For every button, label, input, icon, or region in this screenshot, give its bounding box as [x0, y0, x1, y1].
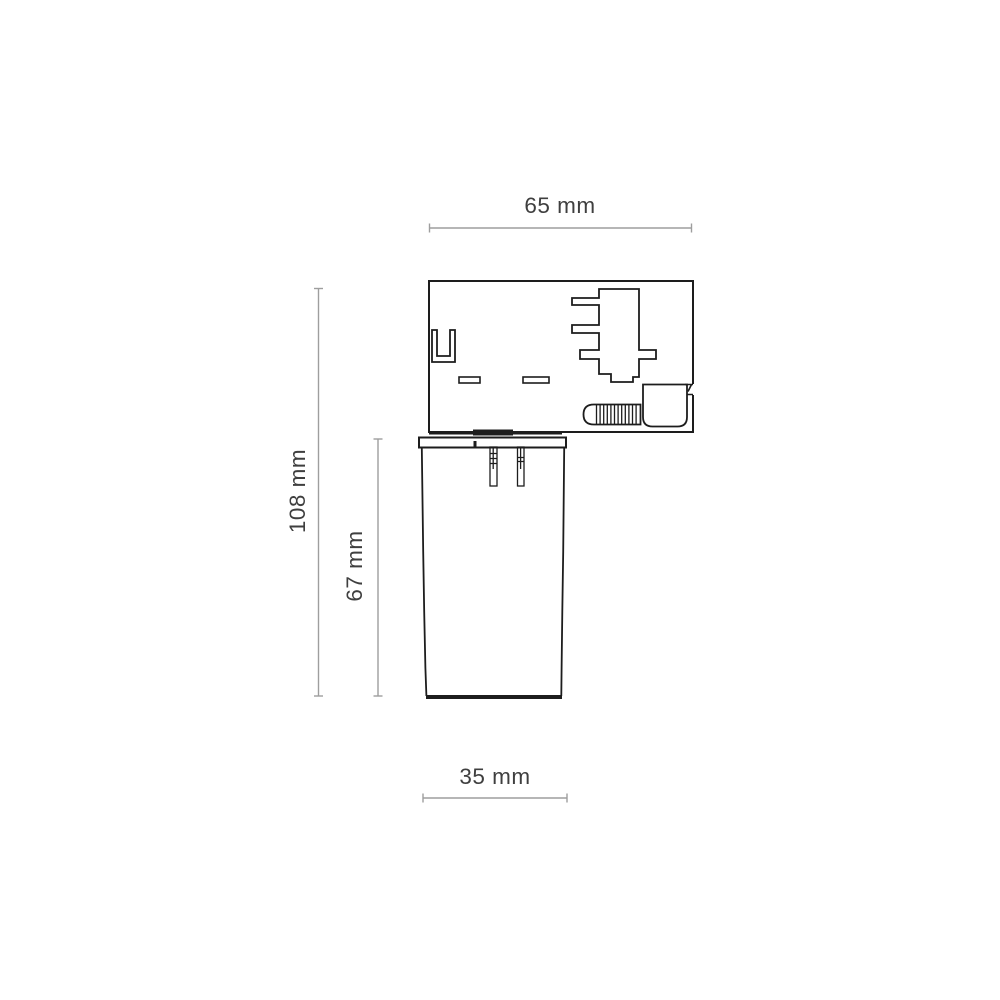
dimension-overall-height — [314, 289, 323, 697]
fixture-solid-fills — [426, 430, 562, 700]
label-overall-height: 108 mm — [285, 449, 310, 533]
cylinder-body-right-edge — [561, 448, 564, 697]
contact-pin-left — [490, 447, 497, 486]
dimension-drawing-canvas: 65 mm 108 mm 67 mm 35 mm — [0, 0, 1000, 1000]
dimension-body-width — [423, 794, 567, 803]
dimension-adapter-width — [430, 224, 692, 233]
contact-pin-right-detail — [518, 447, 525, 469]
cylinder-base-band — [426, 695, 562, 699]
locking-lever-outline — [643, 385, 687, 427]
cap-detail-mark — [474, 441, 477, 447]
contact-slot-left — [459, 377, 480, 383]
dimension-body-height — [374, 439, 383, 696]
adapter-housing-outline — [429, 281, 693, 432]
drawing-page: 65 mm 108 mm 67 mm 35 mm — [0, 0, 1000, 1000]
label-adapter-width: 65 mm — [524, 193, 595, 218]
contact-pin-right — [518, 447, 525, 486]
mount-interface-center-block — [473, 430, 513, 436]
contact-slot-right — [523, 377, 549, 383]
contact-block-outline — [572, 289, 656, 382]
label-body-width: 35 mm — [459, 764, 530, 789]
contact-pin-left-detail — [490, 447, 497, 469]
cylinder-body-left-edge — [422, 448, 427, 697]
spring-clip-outline — [432, 330, 455, 362]
label-body-height: 67 mm — [342, 530, 367, 601]
cylinder-cap — [419, 438, 566, 448]
dimension-annotations — [314, 224, 692, 803]
knurled-screw-ribs — [597, 405, 637, 424]
dimension-labels: 65 mm 108 mm 67 mm 35 mm — [285, 193, 596, 789]
fixture-drawing — [419, 281, 693, 696]
